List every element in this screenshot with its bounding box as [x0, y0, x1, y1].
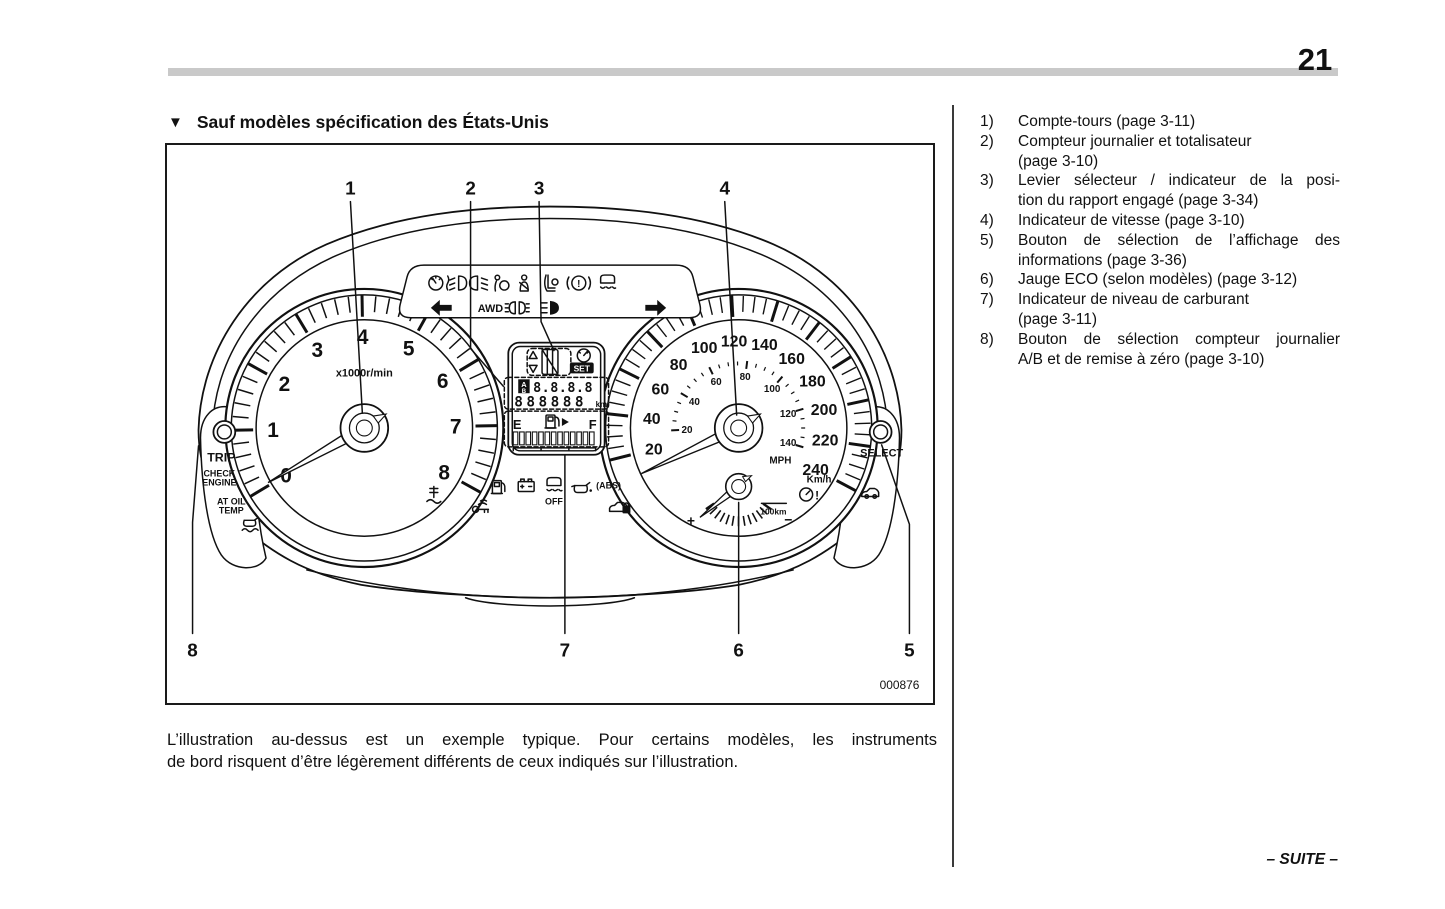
- legend-item-number: 6): [980, 270, 1018, 290]
- odometer-value: 888888: [514, 395, 587, 411]
- svg-text:7: 7: [450, 416, 462, 439]
- check-engine-label-2: ENGINE: [202, 478, 236, 488]
- figure-caption: L’illustration au-dessus est un exemple …: [167, 729, 937, 774]
- section-marker-icon: ▼: [168, 115, 183, 130]
- figure-code: 000876: [880, 678, 920, 692]
- svg-text:60: 60: [652, 382, 670, 399]
- legend-item-number: 4): [980, 211, 1018, 231]
- kmh-label: Km/h: [807, 475, 832, 486]
- callout-7: 7: [560, 639, 571, 660]
- select-label: SELECT: [860, 448, 903, 460]
- continuation-footer: – SUITE –: [1050, 851, 1338, 869]
- legend-item-number: 5): [980, 231, 1018, 271]
- page-number: 21: [1288, 42, 1342, 78]
- svg-text:8: 8: [438, 462, 450, 485]
- eco-unit-label: 100km: [760, 506, 786, 516]
- caption-line: de bord risquent d’être légèrement diffé…: [167, 751, 937, 774]
- legend-item: 4)Indicateur de vitesse (page 3-10): [980, 211, 1340, 231]
- svg-text:2: 2: [279, 373, 291, 396]
- header-rule: [168, 68, 1338, 76]
- svg-text:80: 80: [740, 372, 752, 383]
- trip-label: TRIP: [207, 451, 235, 465]
- svg-text:40: 40: [689, 397, 701, 408]
- tachometer-gauge: 012345678 x1000r/min: [225, 289, 503, 567]
- legend-item: 6)Jauge ECO (selon modèles) (page 3-12): [980, 270, 1340, 290]
- svg-text:140: 140: [751, 337, 778, 354]
- svg-text:40: 40: [643, 411, 661, 428]
- svg-text:100: 100: [691, 340, 718, 357]
- callout-4: 4: [719, 178, 730, 199]
- legend-item: 7)Indicateur de niveau de carburant(page…: [980, 290, 1340, 330]
- callout-6: 6: [733, 639, 744, 660]
- set-badge-label: SET: [574, 363, 591, 373]
- legend-item-number: 3): [980, 171, 1018, 211]
- svg-text:160: 160: [778, 351, 805, 368]
- caption-line: L’illustration au-dessus est un exemple …: [167, 729, 937, 752]
- fuel-empty-label: E: [513, 417, 522, 432]
- svg-text:80: 80: [670, 357, 688, 374]
- odometer-unit: km: [596, 400, 607, 409]
- svg-text:20: 20: [645, 442, 663, 459]
- high-beam-icon: [541, 301, 559, 315]
- cluster-figure: 012345678 x1000r/min 2040608010012014016…: [165, 143, 935, 705]
- svg-text:5: 5: [403, 337, 415, 360]
- svg-text:100: 100: [764, 384, 781, 395]
- svg-text:3: 3: [311, 339, 323, 362]
- svg-text:!: !: [815, 488, 819, 502]
- at-oil-temp-label-2: TEMP: [219, 505, 244, 515]
- tachometer-unit-label: x1000r/min: [336, 367, 393, 379]
- awd-indicator-label: AWD: [478, 303, 504, 315]
- warning-light-panel: ! AWD: [400, 265, 701, 318]
- legend-item: 5)Bouton de sélection de l’affichage des…: [980, 231, 1340, 271]
- callout-3: 3: [534, 178, 545, 199]
- callout-2: 2: [465, 178, 476, 199]
- vdc-off-label: OFF: [545, 496, 563, 506]
- info-display: SET A B 8.8.8.8 888888 km E F: [504, 343, 608, 455]
- svg-text:20: 20: [682, 425, 694, 436]
- svg-text:180: 180: [799, 374, 826, 391]
- legend-item-number: 1): [980, 112, 1018, 132]
- legend-item: 8)Bouton de sélection compteur journalie…: [980, 330, 1340, 370]
- svg-text:A: A: [521, 380, 527, 389]
- section-title: ▼ Sauf modèles spécification des États-U…: [168, 112, 549, 133]
- callout-1: 1: [345, 178, 356, 199]
- svg-text:220: 220: [812, 433, 839, 450]
- eco-plus-label: +: [687, 512, 695, 528]
- callout-8: 8: [187, 639, 198, 660]
- legend-item: 2)Compteur journalier et totalisateur(pa…: [980, 132, 1340, 172]
- svg-text:!: !: [577, 279, 580, 290]
- svg-text:1: 1: [267, 419, 279, 442]
- legend-item: 1)Compte-tours (page 3-11): [980, 112, 1340, 132]
- svg-text:200: 200: [811, 402, 838, 419]
- legend-item-number: 2): [980, 132, 1018, 172]
- callout-legend-list: 1)Compte-tours (page 3-11)2)Compteur jou…: [980, 112, 1340, 369]
- fuel-full-label: F: [589, 417, 597, 432]
- svg-text:120: 120: [780, 409, 797, 420]
- section-title-text: Sauf modèles spécification des États-Uni…: [197, 112, 549, 133]
- svg-text:6: 6: [437, 370, 449, 393]
- callout-5: 5: [904, 639, 915, 660]
- mph-label: MPH: [769, 456, 791, 467]
- legend-item-number: 8): [980, 330, 1018, 370]
- svg-text:120: 120: [721, 333, 748, 350]
- svg-text:140: 140: [780, 438, 797, 449]
- svg-text:60: 60: [711, 377, 723, 388]
- legend-item-number: 7): [980, 290, 1018, 330]
- column-divider: [952, 105, 954, 867]
- instrument-cluster-diagram: 012345678 x1000r/min 2040608010012014016…: [167, 145, 933, 703]
- legend-item: 3)Levier sélecteur / indicateur de la po…: [980, 171, 1340, 211]
- abs-icon: (ABS): [596, 481, 621, 491]
